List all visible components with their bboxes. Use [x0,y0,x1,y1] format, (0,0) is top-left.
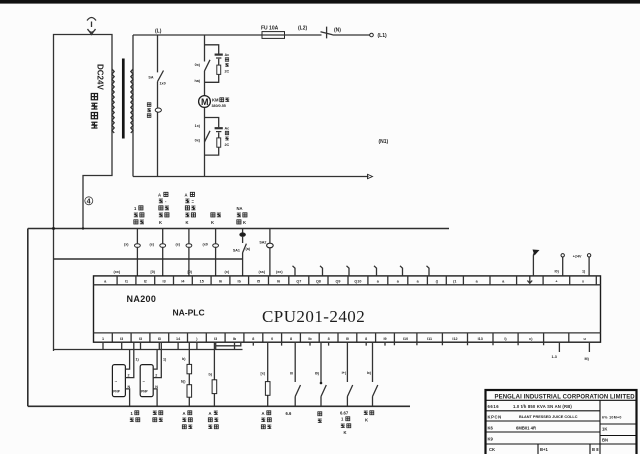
svg-text:6.67: 6.67 [340,411,349,416]
svg-text:NA200: NA200 [127,294,157,304]
svg-text:Ac: Ac [225,127,230,131]
svg-text:1x): 1x) [195,124,201,128]
svg-text:+: + [555,280,557,284]
svg-text:(xx): (xx) [276,270,283,274]
svg-text:8: 8 [290,337,292,341]
svg-text:[0): [0) [151,270,156,274]
svg-text:6616: 6616 [488,404,500,409]
svg-text:N: N [155,385,158,389]
svg-text:8: 8 [328,337,330,341]
svg-text:A: A [158,193,161,198]
svg-text:I5: I5 [257,280,260,284]
svg-text:PNP: PNP [113,390,120,394]
svg-text:A: A [262,411,265,416]
svg-text:I11: I11 [427,337,432,341]
svg-text:CK: CK [489,447,495,452]
svg-text:+24V: +24V [573,255,582,259]
svg-text:(L1): (L1) [378,33,388,39]
svg-text:(a): (a) [246,247,251,251]
svg-text:(xx): (xx) [114,270,121,274]
svg-text:I0: I0 [290,372,293,376]
svg-text:KM: KM [212,98,219,103]
svg-text:CPU201-2402: CPU201-2402 [262,307,365,326]
svg-text:380/0.55: 380/0.55 [212,104,226,108]
svg-text:6% 10M+0: 6% 10M+0 [602,416,622,420]
svg-text:A: A [209,411,212,416]
svg-text:8: 8 [252,337,254,341]
svg-text:8: 8 [365,337,367,341]
svg-text:NA: NA [237,206,243,211]
svg-text:A: A [183,411,186,416]
svg-text:1.0 t/h 850 KVA SN AN (RB): 1.0 t/h 850 KVA SN AN (RB) [513,404,572,409]
svg-text:I3: I3 [120,337,123,341]
svg-text:(N1): (N1) [379,139,389,145]
svg-text:Q7: Q7 [296,280,301,284]
svg-text:(x(: (x( [225,270,230,274]
svg-text:(1: (1 [453,280,456,284]
svg-text:I2: I2 [144,280,147,284]
svg-text:(L2): (L2) [298,26,308,32]
svg-text:1x0: 1x0 [160,82,166,86]
svg-text:DC24V: DC24V [96,64,105,90]
svg-text:2C: 2C [225,70,230,74]
svg-text:I3: I3 [214,337,217,341]
svg-text:FU 10A: FU 10A [261,26,279,32]
svg-text:b(): b() [181,380,186,384]
svg-text:~: ~ [142,379,145,384]
svg-text:(e): (e) [176,242,181,246]
svg-text:I10: I10 [403,337,408,341]
svg-text:1K: 1K [602,427,607,432]
svg-text:I3: I3 [163,280,166,284]
svg-text:ha): ha) [194,79,200,83]
svg-text:PNP: PNP [141,390,148,394]
svg-text:(x0: (x0 [203,242,208,246]
svg-text:6.6: 6.6 [286,411,292,416]
svg-text:SA1: SA1 [233,249,240,253]
svg-text:2: 2 [155,374,157,378]
svg-text:I3: I3 [139,337,142,341]
svg-text:SA: SA [148,76,153,80]
svg-text:Q9: Q9 [336,280,341,284]
svg-text:1-3: 1-3 [552,355,557,359]
svg-text:0: 0 [271,337,273,341]
svg-text:I3: I3 [158,337,161,341]
svg-text:[x(: [x( [260,372,265,376]
svg-text:2C: 2C [225,143,230,147]
svg-text:K9: K9 [488,437,494,442]
svg-text:(e): (e) [150,242,155,246]
svg-text:Q8: Q8 [316,280,321,284]
svg-text:~: ~ [115,379,118,384]
svg-text:BLANT PRESSED JUICE COLLC: BLANT PRESSED JUICE COLLC [519,415,578,419]
svg-text:KPCN: KPCN [488,414,502,419]
svg-text:6MB01 4R: 6MB01 4R [516,425,536,430]
svg-text:I6: I6 [219,280,222,284]
svg-text:K: K [159,220,162,225]
svg-text:A: A [185,193,188,198]
svg-text:NA-PLC: NA-PLC [173,308,205,318]
svg-text:PENGLAI INDUSTRIAL CORPORATION: PENGLAI INDUSTRIAL CORPORATION LIMITED [495,394,636,400]
svg-text:I9: I9 [383,337,386,341]
svg-text:(x): (x) [124,242,129,246]
svg-text:BN: BN [602,438,608,443]
svg-text:N: N [128,385,131,389]
svg-text:M): M) [585,357,590,361]
svg-text:M: M [201,97,209,107]
svg-text:K: K [344,430,347,435]
svg-text:4: 4 [87,199,91,206]
svg-text:Q10: Q10 [354,280,361,284]
svg-text:K: K [186,220,189,225]
svg-text:(N): (N) [334,28,341,34]
svg-text:B+1: B+1 [540,447,548,452]
svg-text:K: K [243,220,246,225]
svg-text:I1: I1 [125,280,128,284]
svg-text:I12: I12 [452,337,457,341]
svg-text:I6: I6 [277,280,280,284]
svg-text:[0): [0) [188,270,193,274]
svg-text:2: 2 [128,374,130,378]
svg-text:(ss): (ss) [259,270,266,274]
svg-text:0x): 0x) [195,139,201,143]
svg-text:B 8: B 8 [592,447,599,452]
svg-text:0x): 0x) [195,63,201,67]
svg-text:1: 1 [102,337,104,341]
svg-text:I13: I13 [478,337,483,341]
svg-text:15: 15 [200,280,204,284]
svg-text:(L): (L) [155,29,162,35]
svg-text:Ac: Ac [225,53,230,57]
svg-text:K6: K6 [488,425,494,430]
svg-text:I+(: I+( [342,371,347,375]
svg-text:K: K [211,220,214,225]
svg-text:K: K [365,418,368,423]
svg-text:SA2: SA2 [259,241,266,245]
svg-text:I0: I0 [346,337,349,341]
